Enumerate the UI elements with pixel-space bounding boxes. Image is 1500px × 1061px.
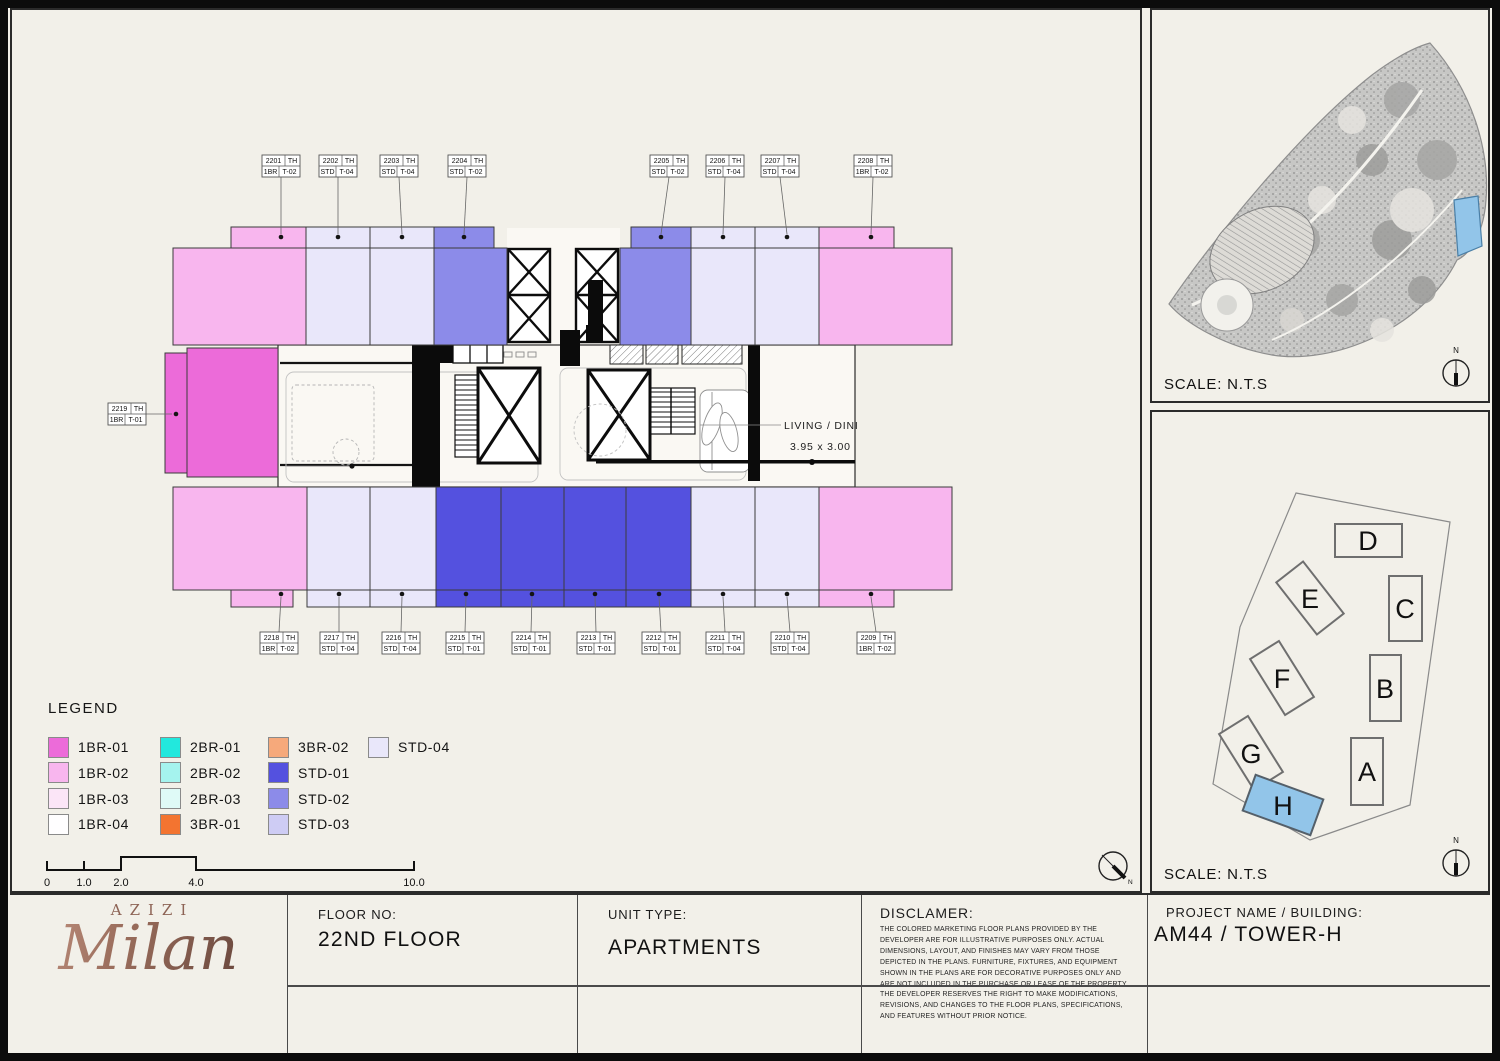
svg-text:2214: 2214: [516, 635, 532, 642]
north-arrow-key: N: [1438, 835, 1474, 885]
legend-title: LEGEND: [48, 700, 568, 717]
svg-text:2218: 2218: [264, 635, 280, 642]
legend-swatch: [48, 737, 69, 758]
svg-text:TH: TH: [286, 635, 295, 642]
legend-label: 1BR-03: [78, 791, 129, 807]
svg-text:T-04: T-04: [402, 646, 416, 653]
svg-text:T-01: T-01: [662, 646, 676, 653]
title-block-divider: [287, 985, 1490, 987]
svg-text:2219: 2219: [112, 406, 128, 413]
svg-text:T-04: T-04: [339, 169, 353, 176]
svg-text:STD: STD: [708, 169, 722, 176]
legend: LEGEND 1BR-011BR-021BR-031BR-042BR-012BR…: [48, 700, 568, 850]
key-scale-label: SCALE: N.T.S: [1164, 866, 1268, 883]
north-arrow-main: N: [1099, 852, 1133, 886]
svg-text:T-04: T-04: [791, 646, 805, 653]
scale-bar-label: 4.0: [188, 877, 203, 889]
legend-label: 1BR-04: [78, 816, 129, 832]
svg-text:LIVING / DINING: LIVING / DINING: [784, 420, 876, 432]
svg-text:TH: TH: [880, 158, 889, 165]
svg-text:STD: STD: [652, 169, 666, 176]
logo-cell: AZIZI Milan: [10, 895, 287, 1053]
svg-text:TH: TH: [797, 635, 806, 642]
svg-text:T-01: T-01: [597, 646, 611, 653]
unit-2207: [755, 177, 819, 345]
floor-no-label: FLOOR NO:: [318, 907, 577, 922]
svg-text:STD: STD: [321, 169, 335, 176]
legend-swatch: [160, 762, 181, 783]
floor-no-value: 22ND FLOOR: [318, 928, 577, 952]
svg-text:STD: STD: [322, 646, 336, 653]
unit-tag-2213: 2213THSTDT-01: [577, 632, 615, 654]
legend-label: 2BR-02: [190, 765, 241, 781]
legend-swatch: [268, 788, 289, 809]
legend-item-1BR-04: 1BR-04: [48, 813, 129, 835]
svg-text:2201: 2201: [266, 158, 282, 165]
svg-text:T-01: T-01: [466, 646, 480, 653]
unit-2201: [173, 177, 306, 345]
svg-text:STD: STD: [448, 646, 462, 653]
svg-text:T-04: T-04: [400, 169, 414, 176]
unit-2203: [370, 177, 434, 345]
unit-tag-2205: 2205THSTDT-02: [650, 155, 688, 177]
legend-label: 1BR-01: [78, 739, 129, 755]
unit-tag-2209: 2209TH1BRT-02: [857, 632, 895, 654]
unit-type-cell: UNIT TYPE: APARTMENTS: [577, 895, 861, 1053]
svg-text:T-02: T-02: [877, 646, 891, 653]
legend-swatch: [48, 762, 69, 783]
unit-tag-2201: 2201TH1BRT-02: [262, 155, 300, 177]
unit-2205: [620, 177, 691, 345]
unit-2209: [819, 487, 952, 632]
svg-text:2213: 2213: [581, 635, 597, 642]
unit-tag-2206: 2206THSTDT-04: [706, 155, 744, 177]
legend-label: STD-03: [298, 816, 350, 832]
svg-text:2216: 2216: [386, 635, 402, 642]
unit-tag-2204: 2204THSTDT-02: [448, 155, 486, 177]
unit-tag-2210: 2210THSTDT-04: [771, 632, 809, 654]
unit-2212: [626, 487, 691, 632]
legend-swatch: [160, 788, 181, 809]
unit-2213: [564, 487, 626, 632]
unit-2217: [307, 487, 370, 632]
scale-bar-label: 10.0: [403, 877, 424, 889]
project-name-cell: PROJECT NAME / BUILDING: AM44 / TOWER-H: [1147, 895, 1490, 1053]
unit-tag-2217: 2217THSTDT-04: [320, 632, 358, 654]
unit-2219: [146, 348, 278, 477]
svg-text:1BR: 1BR: [110, 417, 124, 424]
legend-swatch: [268, 762, 289, 783]
svg-text:T-04: T-04: [726, 646, 740, 653]
svg-text:TH: TH: [346, 635, 355, 642]
svg-text:1BR: 1BR: [264, 169, 278, 176]
unit-tag-2208: 2208TH1BRT-02: [854, 155, 892, 177]
legend-item-STD-04: STD-04: [368, 736, 450, 758]
svg-text:T-02: T-02: [282, 169, 296, 176]
svg-text:N: N: [1128, 879, 1133, 886]
unit-tag-2203: 2203THSTDT-04: [380, 155, 418, 177]
unit-2204: [434, 177, 507, 345]
unit-tag-2215: 2215THSTDT-01: [446, 632, 484, 654]
svg-text:T-02: T-02: [280, 646, 294, 653]
unit-tag-2214: 2214THSTDT-01: [512, 632, 550, 654]
svg-text:T-04: T-04: [781, 169, 795, 176]
unit-2208: [819, 177, 952, 345]
stairs-left: [455, 375, 478, 457]
legend-label: 1BR-02: [78, 765, 129, 781]
svg-text:STD: STD: [773, 646, 787, 653]
scale-bar: 01.02.04.010.0: [44, 857, 425, 889]
svg-text:T-02: T-02: [670, 169, 684, 176]
svg-text:2217: 2217: [324, 635, 340, 642]
legend-item-2BR-03: 2BR-03: [160, 788, 241, 810]
svg-text:TH: TH: [676, 158, 685, 165]
svg-text:2211: 2211: [710, 635, 725, 642]
scale-bar-label: 0: [44, 877, 50, 889]
svg-text:T-02: T-02: [468, 169, 482, 176]
unit-tag-2216: 2216THSTDT-04: [382, 632, 420, 654]
unit-2215: [436, 487, 501, 632]
svg-text:STD: STD: [384, 646, 398, 653]
scale-bar-label: 1.0: [76, 877, 91, 889]
unit-tag-2207: 2207THSTDT-04: [761, 155, 799, 177]
unit-tag-2211: 2211THSTDT-04: [706, 632, 744, 654]
svg-text:3.95 x 3.00: 3.95 x 3.00: [790, 441, 851, 453]
svg-text:TH: TH: [474, 158, 483, 165]
svg-text:STD: STD: [450, 169, 464, 176]
svg-text:TH: TH: [668, 635, 677, 642]
legend-item-1BR-01: 1BR-01: [48, 736, 129, 758]
logo-name-text: Milan: [10, 915, 287, 980]
svg-text:TH: TH: [883, 635, 892, 642]
svg-text:2204: 2204: [452, 158, 468, 165]
azizi-milan-logo: AZIZI Milan: [10, 901, 287, 980]
legend-label: STD-02: [298, 791, 350, 807]
svg-text:STD: STD: [763, 169, 777, 176]
unit-tag-2218: 2218TH1BRT-02: [260, 632, 298, 654]
disclaimer-cell: DISCLAMER: THE COLORED MARKETING FLOOR P…: [861, 895, 1147, 1053]
svg-text:TH: TH: [603, 635, 612, 642]
unit-2211: [691, 487, 755, 632]
svg-text:1BR: 1BR: [262, 646, 276, 653]
svg-text:T-01: T-01: [128, 417, 142, 424]
svg-text:2202: 2202: [323, 158, 339, 165]
disclaimer-label: DISCLAMER:: [880, 905, 1147, 921]
svg-text:TH: TH: [288, 158, 297, 165]
legend-label: STD-01: [298, 765, 350, 781]
svg-text:N: N: [1453, 346, 1459, 355]
svg-text:TH: TH: [406, 158, 415, 165]
legend-item-3BR-02: 3BR-02: [268, 736, 349, 758]
svg-text:TH: TH: [134, 406, 143, 413]
legend-item-3BR-01: 3BR-01: [160, 813, 241, 835]
legend-label: STD-04: [398, 739, 450, 755]
legend-swatch: [268, 737, 289, 758]
svg-text:STD: STD: [644, 646, 658, 653]
svg-text:T-01: T-01: [532, 646, 546, 653]
svg-text:TH: TH: [732, 635, 741, 642]
svg-text:2208: 2208: [858, 158, 874, 165]
unit-2214: [501, 487, 564, 632]
svg-text:2210: 2210: [775, 635, 791, 642]
legend-swatch: [160, 814, 181, 835]
unit-2206: [691, 177, 755, 345]
floorplan-sheet: LIVING / DINING 3.95 x 3.00 2201TH1BRT-0…: [0, 0, 1500, 1061]
svg-text:2206: 2206: [710, 158, 726, 165]
svg-text:2212: 2212: [646, 635, 662, 642]
legend-item-STD-03: STD-03: [268, 813, 350, 835]
svg-text:T-02: T-02: [874, 169, 888, 176]
project-name-value: AM44 / TOWER-H: [1154, 923, 1490, 947]
svg-text:STD: STD: [579, 646, 593, 653]
north-arrow-site: N: [1438, 345, 1474, 395]
legend-item-2BR-01: 2BR-01: [160, 736, 241, 758]
svg-text:STD: STD: [514, 646, 528, 653]
svg-text:TH: TH: [538, 635, 547, 642]
svg-text:N: N: [1453, 836, 1459, 845]
legend-swatch: [48, 814, 69, 835]
project-name-label: PROJECT NAME / BUILDING:: [1166, 905, 1490, 920]
legend-swatch: [368, 737, 389, 758]
legend-item-1BR-03: 1BR-03: [48, 788, 129, 810]
legend-item-1BR-02: 1BR-02: [48, 762, 129, 784]
unit-tag-2212: 2212THSTDT-01: [642, 632, 680, 654]
svg-text:STD: STD: [382, 169, 396, 176]
unit-type-value: APARTMENTS: [608, 936, 861, 960]
unit-2210: [755, 487, 819, 632]
floor-no-cell: FLOOR NO: 22ND FLOOR: [287, 895, 577, 1053]
svg-text:TH: TH: [408, 635, 417, 642]
svg-text:2215: 2215: [450, 635, 466, 642]
unit-tag-2219: 2219TH1BRT-01: [108, 403, 146, 425]
svg-text:2203: 2203: [384, 158, 400, 165]
svg-text:2205: 2205: [654, 158, 670, 165]
svg-text:T-04: T-04: [726, 169, 740, 176]
legend-item-STD-01: STD-01: [268, 762, 350, 784]
unit-2216: [370, 487, 436, 632]
svg-text:1BR: 1BR: [856, 169, 870, 176]
legend-swatch: [160, 737, 181, 758]
unit-2218: [173, 487, 307, 632]
svg-text:TH: TH: [732, 158, 741, 165]
unit-type-label: UNIT TYPE:: [608, 907, 861, 922]
site-scale-label: SCALE: N.T.S: [1164, 376, 1268, 393]
unit-2202: [306, 177, 370, 345]
svg-text:STD: STD: [708, 646, 722, 653]
legend-item-2BR-02: 2BR-02: [160, 762, 241, 784]
svg-text:2209: 2209: [861, 635, 877, 642]
unit-tag-2202: 2202THSTDT-04: [319, 155, 357, 177]
svg-text:TH: TH: [787, 158, 796, 165]
svg-text:1BR: 1BR: [859, 646, 873, 653]
svg-text:TH: TH: [472, 635, 481, 642]
title-block: AZIZI Milan FLOOR NO: 22ND FLOOR UNIT TY…: [10, 893, 1490, 1053]
legend-label: 2BR-03: [190, 791, 241, 807]
svg-text:TH: TH: [345, 158, 354, 165]
legend-swatch: [268, 814, 289, 835]
legend-label: 2BR-01: [190, 739, 241, 755]
legend-swatch: [48, 788, 69, 809]
stairs-right: [648, 388, 695, 434]
legend-label: 3BR-02: [298, 739, 349, 755]
disclaimer-text: THE COLORED MARKETING FLOOR PLANS PROVID…: [880, 925, 1136, 1023]
legend-item-STD-02: STD-02: [268, 788, 350, 810]
svg-text:2207: 2207: [765, 158, 781, 165]
scale-bar-label: 2.0: [113, 877, 128, 889]
svg-text:T-04: T-04: [340, 646, 354, 653]
legend-label: 3BR-01: [190, 816, 241, 832]
